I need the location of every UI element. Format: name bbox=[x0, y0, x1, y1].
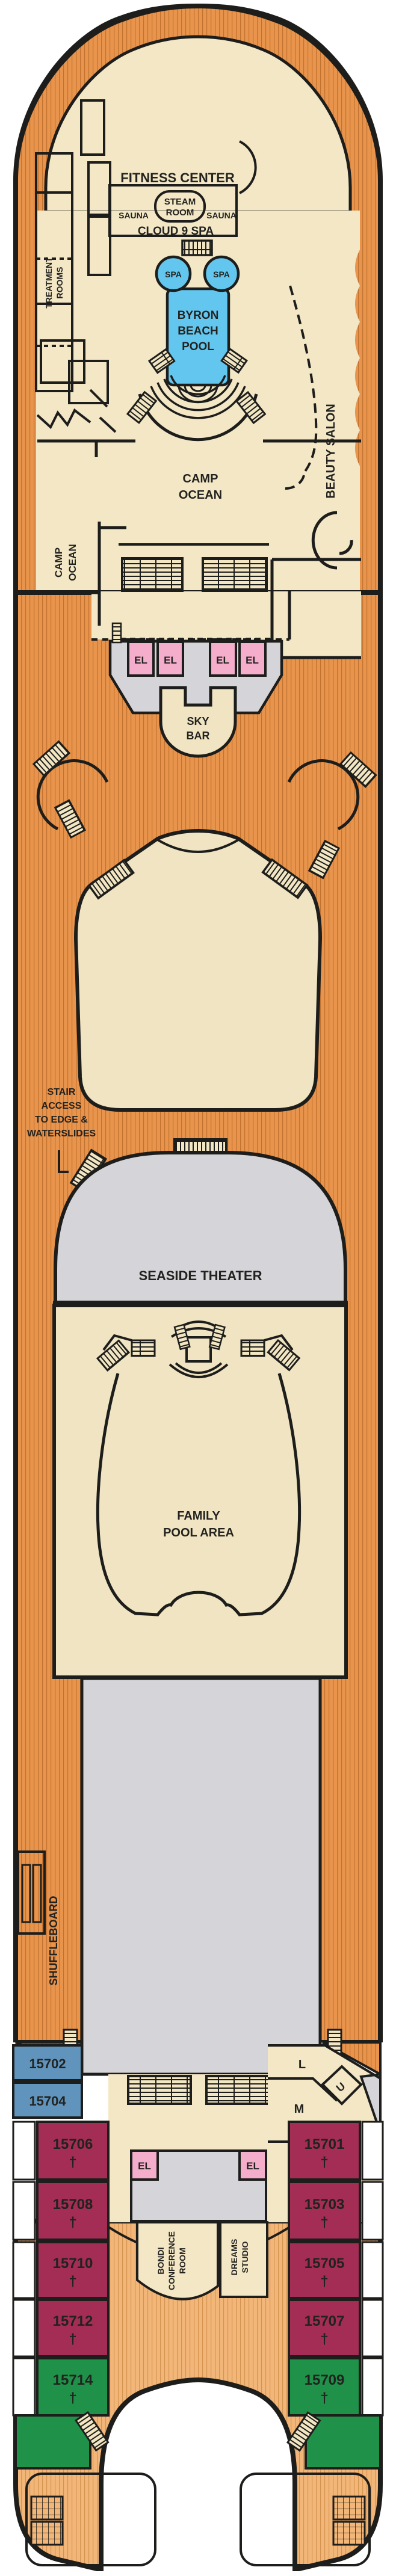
cabins-right bbox=[289, 2122, 383, 2468]
cabin-15707-label: 15707 bbox=[305, 2313, 345, 2329]
cabin-15703-dagger: † bbox=[320, 2214, 328, 2231]
balcony bbox=[13, 2122, 35, 2180]
open-deck-gray bbox=[82, 1678, 320, 2074]
cabin-15707-dagger: † bbox=[320, 2331, 328, 2347]
cloud9-spa-label: CLOUD 9 SPA bbox=[138, 225, 214, 238]
cabin-15702-label: 15702 bbox=[29, 2056, 66, 2071]
byron-pool-label-3: POOL bbox=[182, 340, 214, 353]
seaside-theater-label: SEASIDE THEATER bbox=[139, 1268, 262, 1283]
cabin-15706-dagger: † bbox=[69, 2154, 76, 2171]
balcony bbox=[13, 2358, 35, 2415]
cabin-15703-label: 15703 bbox=[305, 2196, 345, 2213]
cabins-left bbox=[13, 2122, 108, 2468]
lobby-ladder bbox=[113, 623, 121, 642]
sauna-left-label: SAUNA bbox=[119, 211, 149, 220]
waterworks-structure bbox=[76, 831, 320, 1110]
cabin-15706-label: 15706 bbox=[53, 2136, 93, 2152]
deck-plan: FITNESS CENTER STEAM ROOM SAUNA SAUNA CL… bbox=[0, 0, 396, 2576]
dreams-label-2: STUDIO bbox=[240, 2241, 250, 2273]
bondi-label-1: BONDI bbox=[156, 2247, 166, 2274]
el5-label: EL bbox=[138, 2160, 151, 2172]
balcony bbox=[13, 2182, 35, 2240]
camp-ocean-ext-right bbox=[272, 591, 361, 658]
cabin-15712-label: 15712 bbox=[53, 2313, 93, 2329]
fitness-center-label: FITNESS CENTER bbox=[120, 170, 235, 185]
camp-ocean-main-label-1: CAMP bbox=[183, 472, 218, 485]
cabin-15714-label: 15714 bbox=[53, 2372, 93, 2388]
el3-label: EL bbox=[216, 655, 229, 666]
stern-stair-right-b bbox=[333, 2522, 365, 2545]
cabin-15705-label: 15705 bbox=[305, 2255, 345, 2272]
camp-ocean-main-label-2: OCEAN bbox=[179, 488, 222, 502]
camp-ocean-side-label-2: OCEAN bbox=[67, 544, 78, 581]
spa-tub-left-label: SPA bbox=[165, 270, 182, 279]
cabin-15708-label: 15708 bbox=[53, 2196, 93, 2213]
spa-tub-right-label: SPA bbox=[213, 270, 230, 279]
cabin-15709-dagger: † bbox=[320, 2390, 328, 2406]
treatment-rooms-label-1: TREATMENT bbox=[44, 257, 54, 309]
pool-ladder bbox=[182, 241, 212, 255]
el1-label: EL bbox=[134, 655, 147, 666]
cabin-15705-dagger: † bbox=[320, 2273, 328, 2290]
el6-label: EL bbox=[246, 2160, 259, 2172]
byron-pool-label-2: BEACH bbox=[178, 325, 218, 337]
cabin-15714-dagger: † bbox=[69, 2390, 76, 2406]
el4-label: EL bbox=[246, 655, 259, 666]
treatment-rooms-label-2: ROOMS bbox=[55, 267, 64, 299]
room-m-label: M bbox=[294, 2103, 305, 2116]
family-pool-label-1: FAMILY bbox=[177, 1509, 220, 1523]
bondi-label-2: CONFERENCE bbox=[167, 2231, 176, 2290]
sky-bar-label-1: SKY bbox=[187, 715, 209, 727]
balcony bbox=[13, 2242, 35, 2298]
shuffleboard-label: SHUFFLEBOARD bbox=[48, 1896, 60, 1986]
cabin-15708-dagger: † bbox=[69, 2214, 76, 2231]
sauna-right-label: SAUNA bbox=[206, 211, 237, 220]
el2-label: EL bbox=[164, 655, 177, 666]
stair-access-label-3: TO EDGE & bbox=[35, 1115, 88, 1125]
bondi-label-3: ROOM bbox=[178, 2248, 187, 2274]
upper-deck-left bbox=[18, 211, 36, 596]
cabin-15710-label: 15710 bbox=[53, 2255, 93, 2272]
stair-access-label-2: ACCESS bbox=[42, 1101, 82, 1111]
cabin-15704-label: 15704 bbox=[29, 2094, 66, 2109]
balcony bbox=[362, 2358, 383, 2415]
balcony bbox=[362, 2300, 383, 2356]
cabin-15701-dagger: † bbox=[320, 2154, 328, 2171]
stair-access-label-4: WATERSLIDES bbox=[27, 1129, 96, 1139]
balcony bbox=[362, 2122, 383, 2180]
cabin-15709-label: 15709 bbox=[305, 2372, 345, 2388]
dreams-label-1: DREAMS bbox=[229, 2239, 239, 2276]
family-pool-area bbox=[54, 1305, 346, 1677]
stern-stair-left-a bbox=[31, 2497, 63, 2519]
balcony bbox=[13, 2300, 35, 2356]
stern-stair-right-a bbox=[333, 2497, 365, 2519]
family-pool-label-2: POOL AREA bbox=[163, 1526, 234, 1539]
balcony bbox=[362, 2182, 383, 2240]
steam-room-label-2: ROOM bbox=[166, 208, 194, 218]
beauty-salon-label: BEAUTY SALON bbox=[324, 404, 338, 498]
deck-plan-drawing: FITNESS CENTER STEAM ROOM SAUNA SAUNA CL… bbox=[0, 0, 396, 2576]
steam-room-label-1: STEAM bbox=[164, 197, 196, 207]
cabin-15701-label: 15701 bbox=[305, 2136, 345, 2152]
camp-ocean-side-label-1: CAMP bbox=[53, 547, 64, 578]
cabin-15710-dagger: † bbox=[69, 2273, 76, 2290]
sky-bar-label-2: BAR bbox=[187, 730, 210, 742]
balcony bbox=[362, 2242, 383, 2298]
stern-stair-left-b bbox=[31, 2522, 63, 2545]
byron-pool-label-1: BYRON bbox=[178, 309, 219, 322]
room-l-label: L bbox=[299, 2058, 306, 2071]
stair-access-label-1: STAIR bbox=[48, 1087, 76, 1097]
cabin-15712-dagger: † bbox=[69, 2331, 76, 2347]
